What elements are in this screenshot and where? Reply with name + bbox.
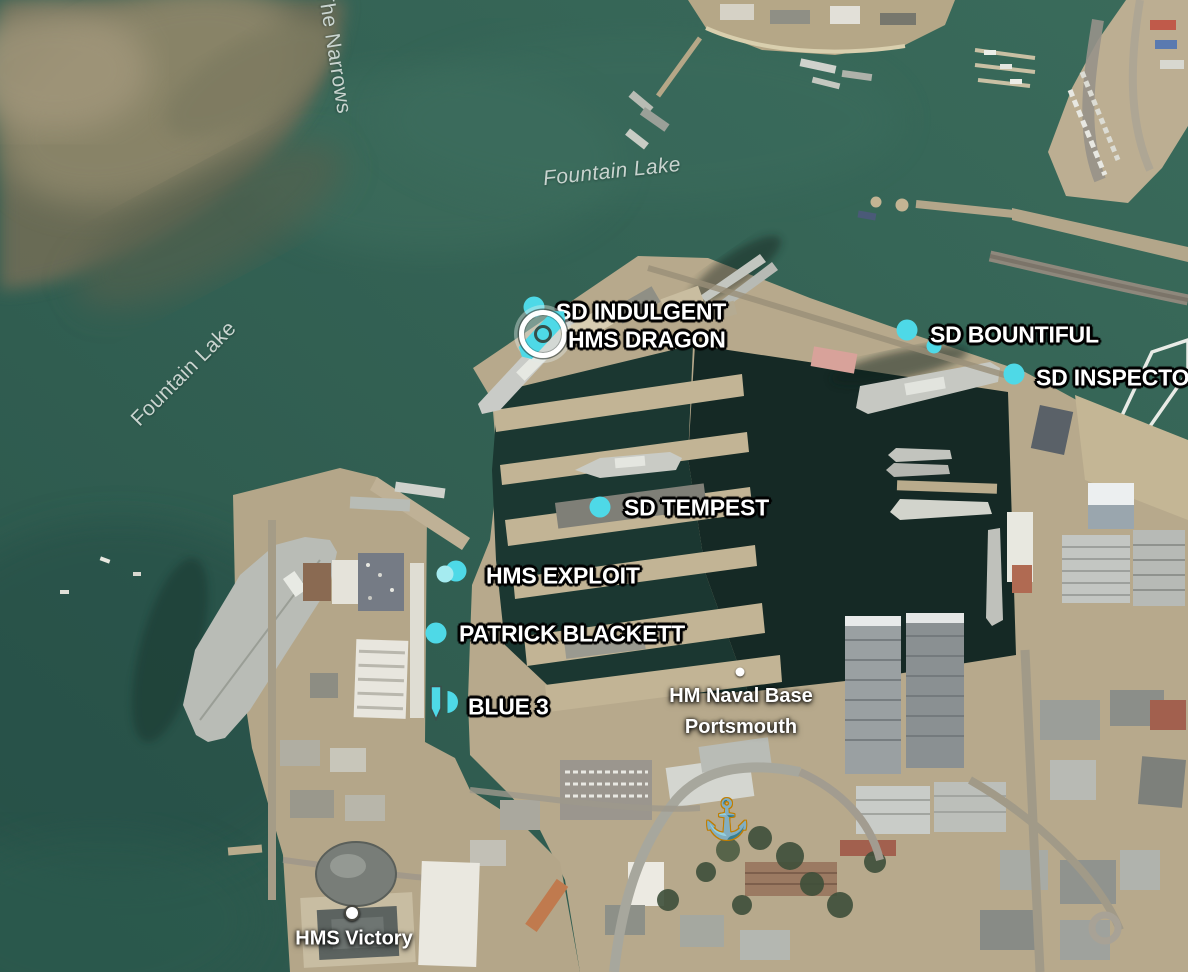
vessel-label-sd-bountiful: SD BOUNTIFUL — [930, 322, 1099, 349]
vessel-marker-sd-bountiful[interactable] — [897, 320, 918, 341]
vessel-marker-sd-tempest[interactable] — [590, 497, 611, 518]
vessel-label-sd-inspector: SD INSPECTOR — [1036, 365, 1188, 392]
vessel-marker-sd-inspector[interactable] — [1004, 364, 1025, 385]
vessel-marker-patrick-blackett[interactable] — [426, 623, 447, 644]
marker-core-dot — [534, 325, 552, 343]
hms-victory-label: HMS Victory — [295, 924, 412, 955]
vessel-marker-hms-exploit[interactable] — [446, 561, 467, 582]
vessel-label-sd-tempest: SD TEMPEST — [624, 495, 769, 522]
ship-hull-icon — [429, 685, 444, 721]
vessel-label-blue-3: BLUE 3 — [468, 694, 549, 721]
vessel-label-sd-indulgent: SD INDULGENT — [556, 299, 726, 326]
naval-base-label-line1: HM Naval Base — [669, 681, 812, 712]
vessel-label-patrick-blackett: PATRICK BLACKETT — [459, 621, 685, 648]
map-viewport: The Narrows Fountain Lake Fountain Lake … — [0, 0, 1188, 972]
hms-victory-poi-dot — [344, 905, 360, 921]
anchor-icon[interactable]: ⚓ — [703, 801, 750, 839]
naval-base-label-line2: Portsmouth — [669, 712, 812, 743]
satellite-basemap[interactable] — [0, 0, 1188, 972]
naval-base-label: HM Naval Base Portsmouth — [669, 681, 812, 743]
naval-base-poi-dot — [736, 668, 745, 677]
vessel-label-hms-exploit: HMS EXPLOIT — [486, 563, 640, 590]
vessel-label-hms-dragon: HMS DRAGON — [568, 327, 726, 354]
